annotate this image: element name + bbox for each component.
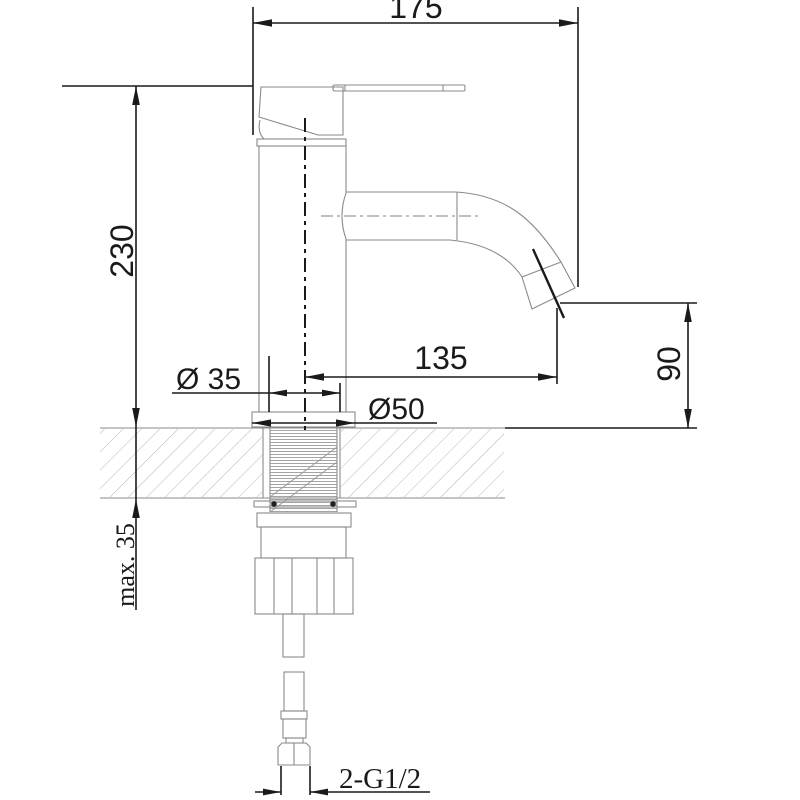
cartridge-collar	[257, 139, 346, 146]
arrow-up	[132, 86, 140, 105]
hose-collar	[281, 711, 307, 719]
dim-base-diameter: Ø50	[252, 393, 437, 427]
supply-hose-lower	[284, 672, 304, 711]
spout-inner-edge	[346, 240, 522, 277]
dim-outlet-height-label: 90	[651, 346, 687, 382]
arrow-left	[310, 789, 328, 796]
dim-shank-diameter: Ø 35	[172, 356, 340, 412]
arrow-left	[269, 390, 287, 397]
supply-hose-upper	[283, 614, 304, 657]
dim-shank-diameter-label: Ø 35	[176, 363, 241, 396]
arrow-down	[684, 409, 692, 428]
handle-lever	[333, 85, 465, 91]
dim-overall-height: 230	[62, 86, 253, 610]
dim-max-thickness-label: max. 35	[111, 523, 140, 607]
arrow-down	[132, 408, 140, 427]
arrow-left	[253, 19, 272, 27]
dim-overall-depth: 175	[253, 0, 578, 287]
dim-overall-depth-label: 175	[389, 0, 442, 25]
cartridge-neck	[259, 120, 264, 139]
spout-outer-edge	[346, 192, 561, 262]
dim-inlet-thread-label: 2-G1/2	[339, 763, 421, 795]
handle-cap	[259, 87, 343, 135]
dim-spout-reach: 135	[305, 308, 557, 384]
mounting-nut	[255, 558, 353, 614]
dim-inlet-thread: 2-G1/2	[255, 763, 430, 795]
mounting-spacer	[261, 527, 346, 558]
arrow-up	[132, 499, 140, 518]
o-ring-left	[271, 501, 277, 507]
o-ring-right	[330, 501, 336, 507]
dimensions: 175 230 max. 35 135	[62, 0, 697, 795]
dim-spout-reach-label: 135	[414, 340, 467, 376]
dim-max-thickness: max. 35	[111, 499, 140, 607]
arrow-right	[336, 419, 355, 426]
threaded-shank	[270, 429, 337, 512]
hose-ferrule	[283, 719, 306, 738]
counter-hatch-right	[341, 429, 504, 497]
arrow-right	[322, 390, 340, 397]
arrow-right	[538, 373, 557, 381]
dim-overall-height-label: 230	[104, 224, 140, 277]
arrow-left	[305, 373, 324, 381]
dim-base-diameter-label: Ø50	[368, 393, 425, 426]
counter-hatch-left	[100, 429, 262, 497]
arrow-left	[252, 419, 271, 426]
arrow-right	[559, 19, 578, 27]
hose-step	[286, 738, 303, 743]
technical-drawing-page: 175 230 max. 35 135	[0, 0, 800, 800]
arrow-up	[684, 303, 692, 322]
arrow-right	[263, 789, 281, 796]
dim-outlet-height: 90	[505, 303, 697, 428]
mounting-plate	[257, 513, 351, 527]
faucet-technical-drawing: 175 230 max. 35 135	[0, 0, 800, 800]
